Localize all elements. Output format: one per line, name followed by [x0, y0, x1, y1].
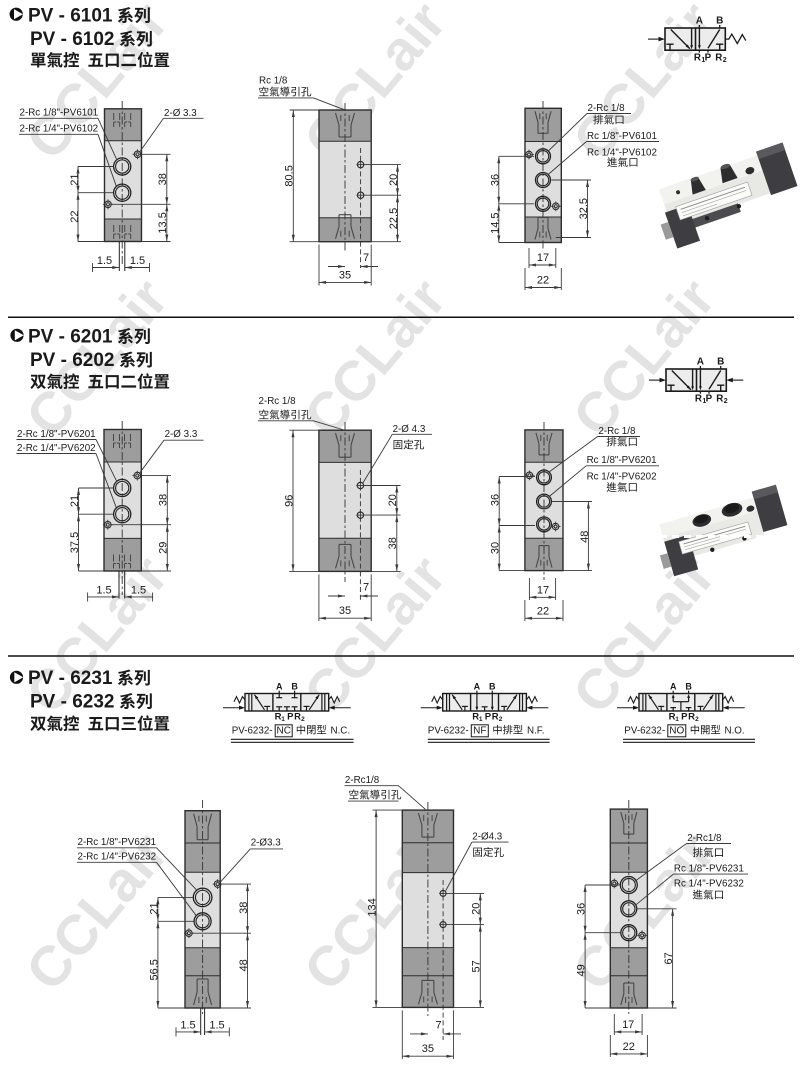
svg-text:2-Ø 4.3: 2-Ø 4.3: [393, 424, 426, 435]
svg-text:B: B: [489, 682, 496, 692]
svg-text:2-Rc 1/4"-PV6232: 2-Rc 1/4"-PV6232: [78, 852, 157, 863]
svg-text:35: 35: [422, 1043, 434, 1055]
svg-text:21: 21: [69, 495, 81, 507]
svg-text:22: 22: [537, 275, 549, 287]
svg-text:2-Ø3.3: 2-Ø3.3: [251, 838, 282, 849]
svg-text:1: 1: [281, 716, 285, 723]
svg-text:R: R: [492, 712, 499, 723]
svg-text:Rc 1/8"-PV6101: Rc 1/8"-PV6101: [587, 131, 657, 142]
svg-text:17: 17: [622, 1019, 634, 1031]
svg-text:21: 21: [69, 173, 81, 185]
svg-text:22: 22: [537, 606, 549, 618]
svg-text:PV - 6201: PV - 6201: [28, 327, 113, 348]
svg-text:14.5: 14.5: [489, 212, 501, 233]
svg-text:Rc 1/4"-PV6232: Rc 1/4"-PV6232: [674, 879, 744, 890]
svg-text:R: R: [688, 712, 695, 723]
svg-text:57: 57: [471, 960, 483, 972]
svg-text:2-Rc 1/8: 2-Rc 1/8: [598, 426, 636, 437]
svg-text:2: 2: [724, 398, 728, 405]
svg-text:1.5: 1.5: [96, 584, 111, 596]
svg-text:7: 7: [363, 582, 369, 594]
svg-text:13.5: 13.5: [157, 212, 169, 233]
svg-text:P: P: [705, 53, 712, 64]
svg-text:22: 22: [69, 210, 81, 222]
svg-text:1.5: 1.5: [131, 584, 146, 596]
svg-text:2: 2: [723, 57, 727, 64]
svg-text:PV - 6231: PV - 6231: [28, 668, 113, 689]
svg-text:N.O.: N.O.: [725, 726, 745, 737]
svg-text:A: A: [696, 16, 703, 27]
svg-text:37.5: 37.5: [69, 532, 81, 553]
svg-text:PV-6232-: PV-6232-: [428, 726, 469, 737]
svg-text:A: A: [670, 682, 677, 692]
svg-text:38: 38: [238, 902, 250, 914]
svg-text:PV - 6102: PV - 6102: [30, 29, 115, 50]
svg-text:21: 21: [148, 902, 160, 914]
svg-text:2-Rc1/8: 2-Rc1/8: [345, 775, 380, 786]
svg-text:1: 1: [479, 716, 483, 723]
svg-text:2-Rc1/8: 2-Rc1/8: [687, 833, 722, 844]
svg-text:PV-6232-: PV-6232-: [232, 726, 273, 737]
svg-text:R: R: [694, 53, 701, 64]
svg-text:NC: NC: [276, 726, 290, 737]
svg-text:1.5: 1.5: [209, 1019, 224, 1031]
svg-text:A: A: [474, 682, 481, 692]
svg-text:NO: NO: [669, 726, 684, 737]
svg-text:2: 2: [301, 716, 305, 723]
svg-text:NF: NF: [473, 726, 486, 737]
svg-text:P: P: [287, 712, 294, 723]
svg-text:35: 35: [339, 269, 351, 281]
svg-text:B: B: [291, 682, 298, 692]
svg-text:R: R: [716, 394, 723, 405]
svg-text:36: 36: [576, 903, 588, 915]
svg-text:Rc 1/8"-PV6201: Rc 1/8"-PV6201: [587, 455, 657, 466]
svg-text:1.5: 1.5: [130, 255, 145, 267]
svg-text:20: 20: [387, 494, 399, 506]
svg-text:134: 134: [367, 898, 379, 916]
svg-text:A: A: [276, 682, 283, 692]
svg-text:PV - 6232: PV - 6232: [30, 692, 115, 713]
svg-text:22: 22: [623, 1041, 635, 1053]
svg-text:2-Rc 1/4"-PV6202: 2-Rc 1/4"-PV6202: [17, 443, 96, 454]
svg-text:2-Rc 1/8"-PV6231: 2-Rc 1/8"-PV6231: [78, 837, 157, 848]
svg-text:56.5: 56.5: [148, 959, 160, 980]
svg-text:R: R: [294, 712, 301, 723]
svg-text:Rc 1/4"-PV6102: Rc 1/4"-PV6102: [587, 148, 657, 159]
svg-text:36: 36: [490, 494, 502, 506]
svg-text:2-Rc 1/8"-PV6201: 2-Rc 1/8"-PV6201: [17, 429, 96, 440]
svg-text:P: P: [681, 712, 688, 723]
svg-text:2: 2: [695, 716, 699, 723]
svg-text:2-Ø 3.3: 2-Ø 3.3: [165, 429, 198, 440]
svg-text:P: P: [485, 712, 492, 723]
svg-text:17: 17: [537, 252, 549, 264]
svg-text:96: 96: [283, 495, 295, 507]
svg-text:PV - 6202: PV - 6202: [30, 350, 115, 371]
svg-text:B: B: [716, 16, 723, 27]
svg-text:29: 29: [158, 542, 170, 554]
svg-text:7: 7: [363, 252, 369, 264]
svg-text:2-Rc 1/4"-PV6102: 2-Rc 1/4"-PV6102: [20, 123, 99, 134]
svg-text:7: 7: [435, 1019, 441, 1031]
svg-text:36: 36: [489, 174, 501, 186]
svg-text:1.5: 1.5: [180, 1019, 195, 1031]
svg-text:PV - 6101: PV - 6101: [28, 6, 113, 27]
svg-text:PV-6232-: PV-6232-: [624, 726, 665, 737]
svg-text:48: 48: [238, 959, 250, 971]
svg-text:35: 35: [339, 605, 351, 617]
svg-text:20: 20: [388, 174, 400, 186]
svg-text:2-Ø 3.3: 2-Ø 3.3: [164, 108, 197, 119]
svg-text:2-Rc 1/8: 2-Rc 1/8: [588, 103, 626, 114]
svg-text:R: R: [715, 53, 722, 64]
svg-text:48: 48: [579, 531, 591, 543]
svg-text:22.5: 22.5: [388, 208, 400, 229]
svg-text:17: 17: [537, 584, 549, 596]
svg-text:49: 49: [576, 964, 588, 976]
svg-text:1: 1: [675, 716, 679, 723]
svg-text:30: 30: [490, 542, 502, 554]
svg-text:Rc 1/4"-PV6202: Rc 1/4"-PV6202: [587, 472, 657, 483]
svg-text:Rc 1/8: Rc 1/8: [259, 76, 288, 87]
svg-text:67: 67: [663, 952, 675, 964]
svg-text:2-Rc 1/8"-PV6101: 2-Rc 1/8"-PV6101: [20, 108, 99, 119]
svg-text:38: 38: [387, 537, 399, 549]
svg-text:A: A: [697, 357, 704, 368]
svg-text:38: 38: [157, 173, 169, 185]
svg-text:2: 2: [499, 716, 503, 723]
svg-text:B: B: [685, 682, 692, 692]
svg-text:Rc 1/8"-PV6231: Rc 1/8"-PV6231: [674, 864, 744, 875]
svg-text:B: B: [717, 357, 724, 368]
svg-text:N.F.: N.F.: [527, 726, 544, 737]
svg-text:2-Ø4.3: 2-Ø4.3: [472, 832, 503, 843]
svg-text:R: R: [695, 394, 702, 405]
svg-text:1.5: 1.5: [97, 255, 112, 267]
svg-text:38: 38: [158, 494, 170, 506]
svg-text:20: 20: [471, 903, 483, 915]
svg-text:P: P: [706, 394, 713, 405]
svg-text:32.5: 32.5: [578, 198, 590, 219]
svg-text:80.5: 80.5: [284, 165, 296, 186]
svg-text:N.C.: N.C.: [331, 726, 351, 737]
svg-text:2-Rc 1/8: 2-Rc 1/8: [259, 396, 297, 407]
